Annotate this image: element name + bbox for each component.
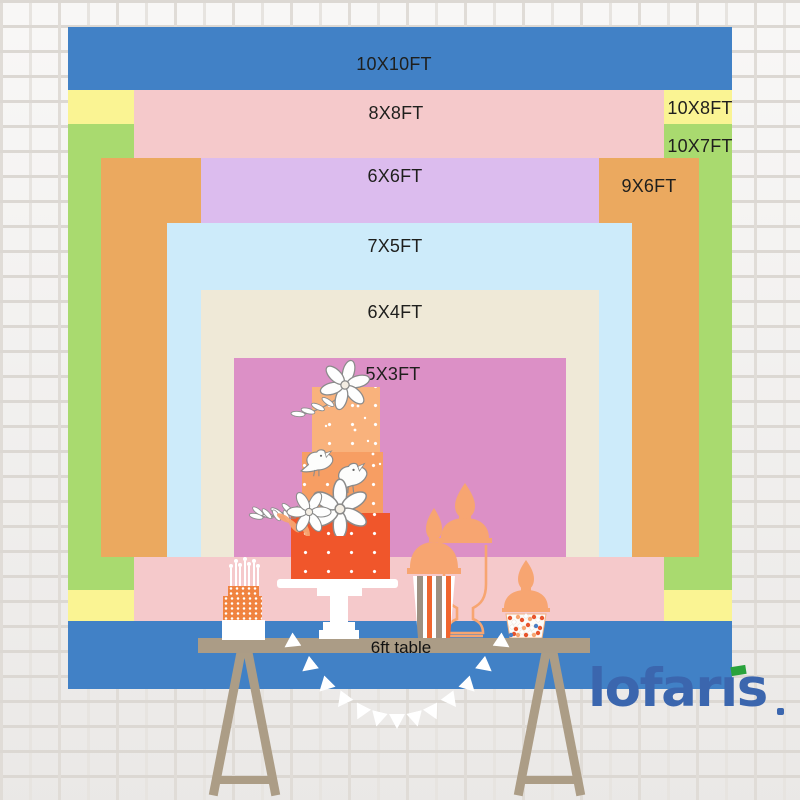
small-cake-base bbox=[222, 620, 265, 640]
cake-stand-step bbox=[317, 588, 362, 596]
striped-popcorn-jar-illustration bbox=[405, 506, 463, 638]
size-label-10x10ft: 10X10FT bbox=[356, 55, 431, 73]
brand-logo-period bbox=[777, 708, 784, 715]
cake-stand-base bbox=[319, 630, 359, 639]
size-label-8x8ft: 8X8FT bbox=[368, 104, 423, 122]
size-label-10x8ft: 10X8FT bbox=[667, 99, 732, 117]
cake-stand-column bbox=[330, 596, 348, 624]
table-leg-crossbar bbox=[213, 776, 275, 784]
candle-tip bbox=[229, 564, 233, 568]
size-label-6x6ft: 6X6FT bbox=[367, 167, 422, 185]
candle-tip bbox=[247, 562, 251, 566]
cake-flowers-and-birds-illustration bbox=[238, 356, 413, 536]
size-label-10x7ft: 10X7FT bbox=[667, 137, 732, 155]
size-label-6x4ft: 6X4FT bbox=[367, 303, 422, 321]
candle-tip bbox=[256, 564, 260, 568]
candle-tip bbox=[238, 563, 242, 567]
table-leg-crossbar bbox=[518, 776, 580, 784]
cake-stand-plate bbox=[277, 579, 398, 588]
size-label-7x5ft: 7X5FT bbox=[367, 237, 422, 255]
backdrop-size-chart-image: 10X10FT 10X8FT 10X7FT 8X8FT 9X6FT 6X6FT … bbox=[0, 0, 800, 800]
candle-tip bbox=[252, 559, 256, 563]
candle-tip bbox=[243, 557, 247, 561]
candle-tip bbox=[234, 559, 238, 563]
table-size-label: 6ft table bbox=[371, 639, 432, 656]
candy-jar-illustration bbox=[500, 558, 552, 638]
size-label-9x6ft: 9X6FT bbox=[621, 177, 676, 195]
small-cake-bottom-tier bbox=[223, 596, 262, 621]
